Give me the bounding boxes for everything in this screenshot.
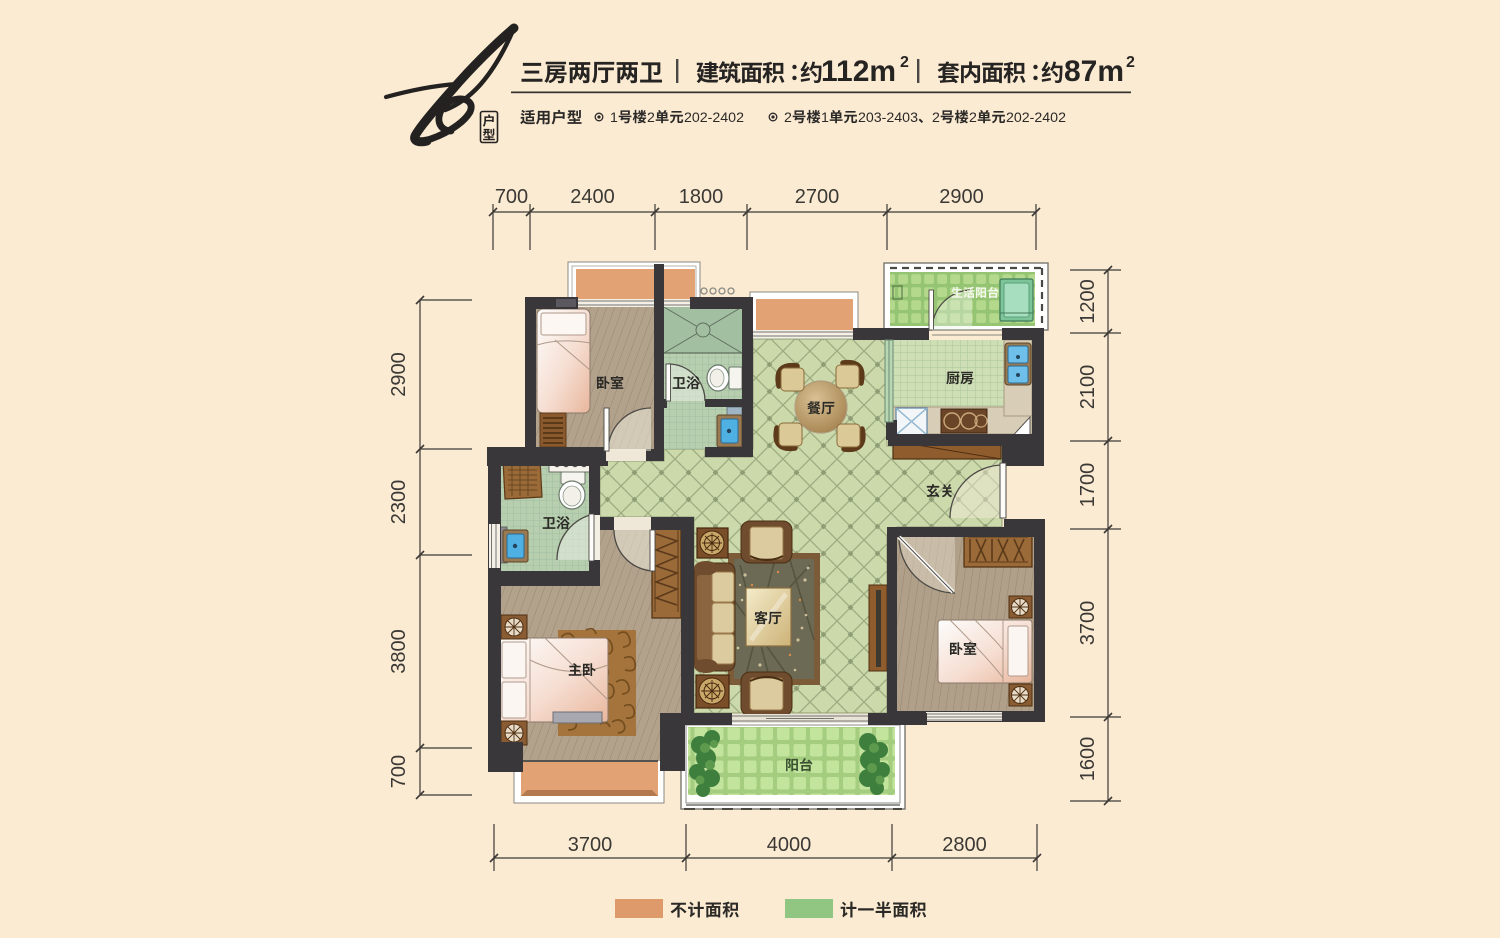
svg-text:2900: 2900 — [939, 186, 984, 208]
svg-text:2700: 2700 — [795, 186, 840, 208]
svg-text:203-2403: 203-2403 — [858, 110, 918, 126]
svg-text:2100: 2100 — [1077, 365, 1099, 410]
svg-text:2800: 2800 — [942, 834, 987, 856]
svg-text:2900: 2900 — [388, 352, 410, 397]
svg-text:700: 700 — [495, 186, 528, 208]
svg-text:202-2402: 202-2402 — [1006, 110, 1066, 126]
svg-text:2: 2 — [647, 110, 655, 126]
svg-text:2: 2 — [969, 110, 977, 126]
svg-text:1700: 1700 — [1077, 463, 1099, 508]
svg-text:4000: 4000 — [767, 834, 812, 856]
svg-text:87m: 87m — [1064, 55, 1124, 88]
svg-text:2: 2 — [900, 54, 909, 71]
svg-text:2: 2 — [784, 110, 792, 126]
svg-text:1200: 1200 — [1077, 279, 1099, 324]
svg-text:1: 1 — [610, 110, 618, 126]
svg-text:2: 2 — [932, 110, 940, 126]
svg-text:1600: 1600 — [1077, 737, 1099, 782]
svg-text:202-2402: 202-2402 — [684, 110, 744, 126]
svg-text:1: 1 — [821, 110, 829, 126]
svg-text:2300: 2300 — [388, 480, 410, 525]
svg-text:3700: 3700 — [568, 834, 613, 856]
svg-text:112m: 112m — [821, 55, 896, 88]
svg-text:2400: 2400 — [570, 186, 615, 208]
svg-text:2: 2 — [1126, 54, 1135, 71]
svg-text:1800: 1800 — [679, 186, 724, 208]
svg-text:3800: 3800 — [388, 629, 410, 674]
svg-text:700: 700 — [388, 755, 410, 788]
svg-text:3700: 3700 — [1077, 601, 1099, 646]
